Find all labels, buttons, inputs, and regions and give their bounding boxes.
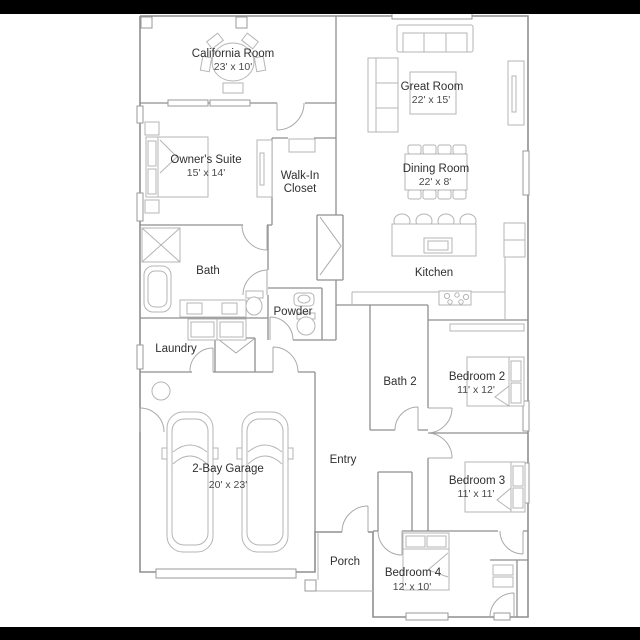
bedroom2-dresser	[450, 324, 524, 331]
window-laundry-left	[137, 345, 143, 369]
bifold-pantry	[320, 217, 341, 275]
garage-door-panel	[156, 569, 296, 578]
dims-bedroom-4: 12' x 10'	[393, 581, 431, 593]
dims-great-room: 22' x 15'	[412, 94, 450, 106]
laundry-fixtures	[188, 319, 246, 340]
label-bath: Bath	[196, 265, 220, 277]
window-owners-left-2	[137, 193, 143, 221]
nightstand	[145, 200, 159, 213]
window-bedroom4-bottom	[406, 613, 448, 620]
label-dining-room: Dining Room	[403, 163, 469, 175]
door-powder	[270, 317, 293, 340]
door-bedroom3	[428, 433, 452, 458]
label-kitchen: Kitchen	[415, 267, 453, 279]
label-bedroom-3: Bedroom 3	[449, 475, 505, 487]
dims-bedroom-3: 11' x 11'	[458, 488, 495, 500]
door-bedroom3-closet	[500, 531, 523, 554]
label-walk-in-closet-2: Closet	[284, 183, 317, 195]
door-bedroom4	[378, 531, 402, 555]
great-room-rug	[410, 72, 456, 114]
bedroom3-bed	[465, 462, 525, 512]
window-bedroom4-bottom-2	[494, 613, 510, 620]
label-owners-suite: Owner's Suite	[170, 154, 241, 166]
label-garage: 2-Bay Garage	[192, 463, 264, 475]
label-powder: Powder	[274, 306, 313, 318]
dims-california-room: 23' x 10'	[214, 61, 252, 73]
closet-shelf	[289, 139, 315, 152]
dims-bedroom-2: 11' x 12'	[457, 384, 495, 396]
cooktop	[439, 291, 471, 305]
door-garage-entry	[273, 347, 298, 372]
nightstand	[145, 122, 159, 135]
patio-bench	[223, 83, 243, 93]
great-room-furniture	[368, 25, 524, 132]
door-garage-side	[140, 408, 164, 432]
floor-plan-drawing: California Room 23' x 10' Great Room 22'…	[0, 0, 640, 640]
label-bath-2: Bath 2	[383, 376, 416, 388]
window-california-2	[210, 100, 250, 106]
label-great-room: Great Room	[401, 81, 464, 93]
window-california-1	[168, 100, 208, 106]
letterbox-bottom-bar	[0, 627, 640, 640]
window-owners-left-1	[137, 106, 143, 123]
bedroom3-closet-shelf	[493, 565, 513, 575]
door-bath2	[395, 407, 418, 430]
label-laundry: Laundry	[155, 343, 197, 355]
door-bath	[242, 225, 267, 250]
bifold-hall-closet	[218, 339, 254, 353]
owners-suite-furniture	[145, 122, 315, 213]
dims-owners-suite: 15' x 14'	[187, 167, 225, 179]
sofa	[397, 25, 473, 52]
post-california-2	[236, 17, 247, 28]
porch-post	[305, 580, 316, 591]
water-heater	[152, 382, 170, 400]
label-bedroom-4: Bedroom 4	[385, 567, 442, 579]
dims-dining-room: 22' x 8'	[419, 176, 452, 188]
bedroom3-closet-shelf	[493, 577, 513, 587]
label-walk-in-closet-1: Walk-In	[281, 170, 320, 182]
label-bedroom-2: Bedroom 2	[449, 371, 505, 383]
door-front-entry	[342, 506, 368, 532]
label-entry: Entry	[330, 454, 357, 466]
kitchen-island	[392, 224, 476, 256]
tv-screen	[512, 76, 516, 112]
post-california-1	[141, 17, 152, 28]
door-bedroom2	[428, 408, 452, 433]
letterbox-top-bar	[0, 0, 640, 14]
sectional-sofa	[368, 58, 398, 132]
door-owners-suite	[277, 103, 304, 130]
floor-plan-page: California Room 23' x 10' Great Room 22'…	[0, 0, 640, 640]
label-california-room: California Room	[192, 48, 274, 60]
window-dining-right	[523, 151, 529, 195]
dims-garage: 20' x 23'	[209, 479, 247, 491]
label-porch: Porch	[330, 556, 360, 568]
